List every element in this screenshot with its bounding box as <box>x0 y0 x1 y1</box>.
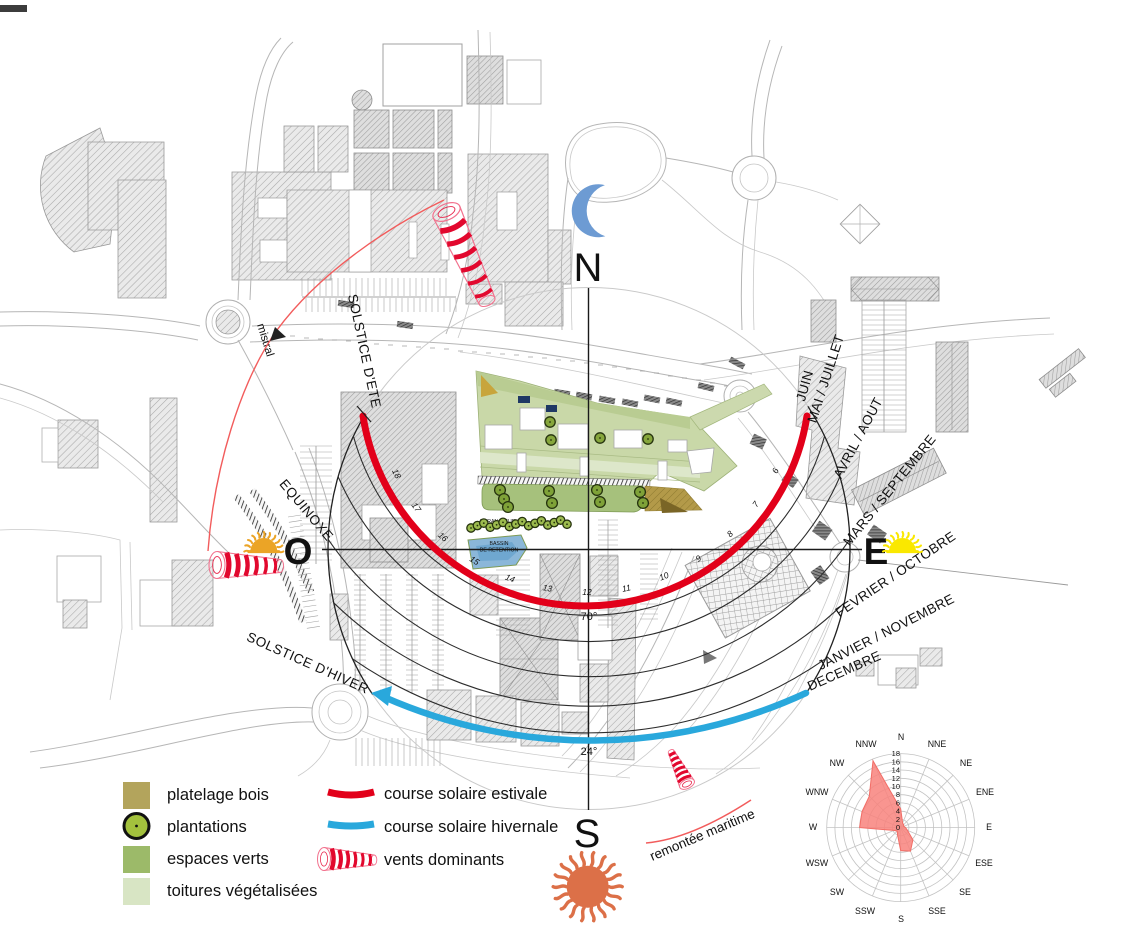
svg-text:13: 13 <box>542 582 553 594</box>
svg-text:14: 14 <box>892 766 900 775</box>
svg-text:2: 2 <box>896 815 900 824</box>
svg-text:BASSIN: BASSIN <box>489 541 508 547</box>
svg-text:WSW: WSW <box>806 858 829 868</box>
svg-text:toitures végétalisées: toitures végétalisées <box>167 882 317 900</box>
svg-text:plantations: plantations <box>167 818 247 836</box>
svg-text:SE: SE <box>959 887 971 897</box>
svg-text:12: 12 <box>892 774 900 783</box>
svg-text:S: S <box>898 914 904 924</box>
svg-text:8: 8 <box>896 790 900 799</box>
svg-text:NNE: NNE <box>928 739 947 749</box>
svg-text:NE: NE <box>960 758 972 768</box>
svg-text:W: W <box>809 822 818 832</box>
svg-text:E: E <box>986 822 992 832</box>
svg-text:SW: SW <box>830 887 845 897</box>
svg-text:70°: 70° <box>581 611 598 623</box>
svg-text:course solaire hivernale: course solaire hivernale <box>384 818 558 836</box>
svg-text:ESE: ESE <box>975 858 993 868</box>
svg-text:vents dominants: vents dominants <box>384 851 504 869</box>
svg-text:NNW: NNW <box>855 739 877 749</box>
svg-text:course solaire estivale: course solaire estivale <box>384 785 547 803</box>
svg-text:SSW: SSW <box>855 906 876 916</box>
svg-text:N: N <box>898 732 904 742</box>
svg-text:S: S <box>574 812 601 856</box>
svg-text:SSE: SSE <box>928 906 946 916</box>
svg-text:18: 18 <box>892 749 900 758</box>
svg-text:4: 4 <box>896 807 900 816</box>
svg-text:0: 0 <box>896 823 900 832</box>
svg-text:O: O <box>284 531 313 572</box>
svg-text:12: 12 <box>582 587 592 597</box>
svg-text:10: 10 <box>892 782 900 791</box>
svg-text:16: 16 <box>892 757 900 766</box>
svg-text:24°: 24° <box>581 746 598 758</box>
svg-text:WNW: WNW <box>806 787 830 797</box>
svg-text:espaces verts: espaces verts <box>167 850 269 868</box>
svg-text:platelage bois: platelage bois <box>167 786 269 804</box>
svg-text:ENE: ENE <box>976 787 994 797</box>
svg-text:N: N <box>574 246 603 290</box>
svg-text:6: 6 <box>896 798 900 807</box>
svg-text:DE RETENTION: DE RETENTION <box>480 548 519 554</box>
svg-text:NW: NW <box>830 758 845 768</box>
